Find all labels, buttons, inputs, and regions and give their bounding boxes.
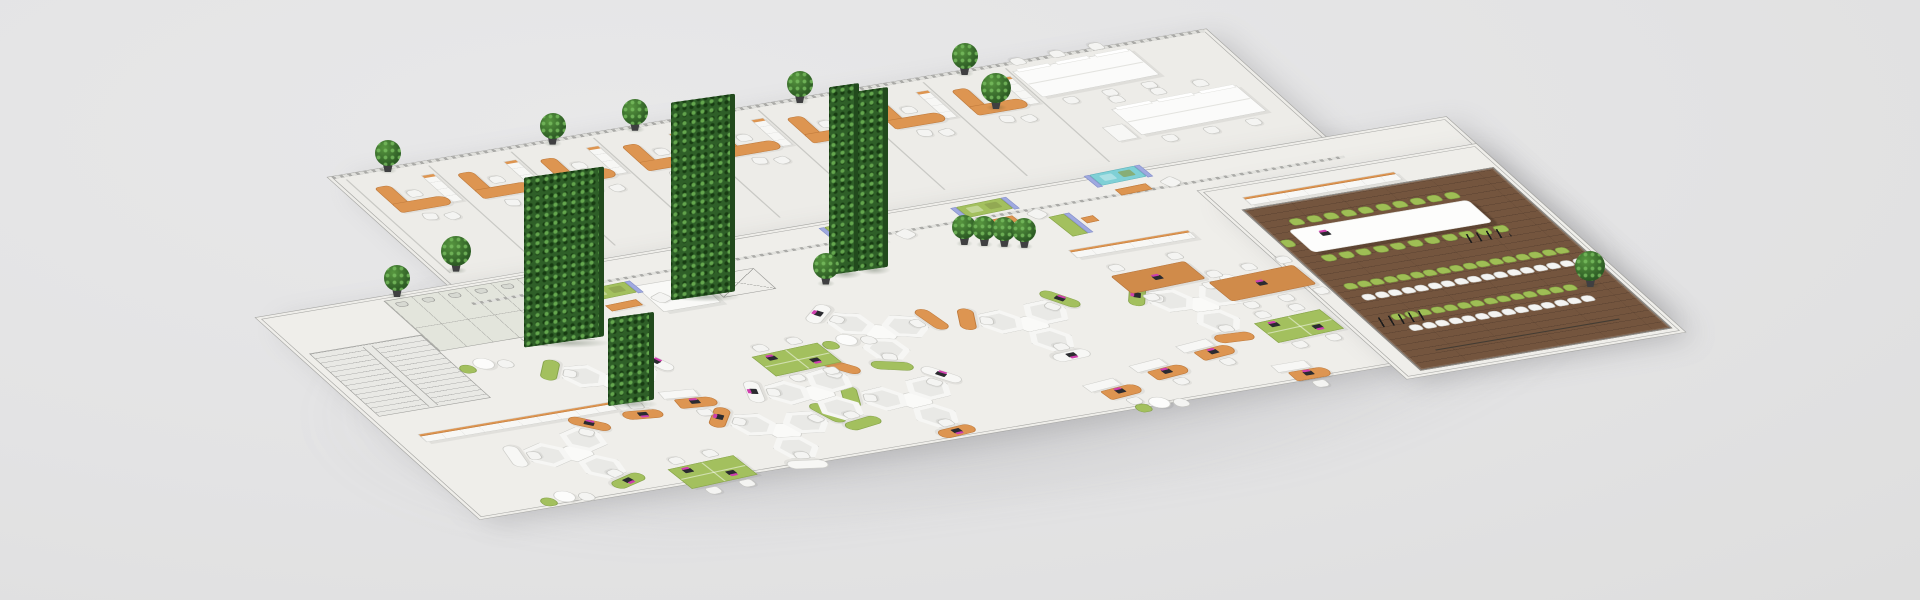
toilet-fixture (500, 283, 516, 289)
laptop-screen (1255, 279, 1264, 282)
bookcase-orange-cap (752, 118, 766, 122)
white-chair (1311, 379, 1332, 388)
laptop-screen (1267, 321, 1276, 324)
white-tub-chair (1170, 397, 1193, 408)
potted-plant (375, 140, 401, 166)
bookcase-orange-cap (669, 132, 683, 136)
laptop-screen (1318, 230, 1327, 233)
toilet-fixture (526, 279, 542, 285)
white-curved-desk (784, 459, 831, 469)
white-chair (737, 478, 758, 487)
toilet-fixture (394, 301, 410, 307)
sofa-cushion (984, 202, 1003, 210)
laptop (637, 412, 650, 416)
laptop-screen (1302, 369, 1311, 372)
laptop (689, 399, 702, 404)
potted-plant (540, 113, 566, 139)
bookcase-orange-cap (999, 77, 1013, 81)
laptop-screen (811, 310, 817, 315)
sofa-cushion (589, 289, 608, 297)
sofa-cushion (852, 222, 871, 230)
potted-plant (622, 99, 648, 125)
laptop-screen (1113, 387, 1122, 390)
stair-rail (363, 346, 439, 407)
laptop-screen (747, 389, 752, 393)
toilet-fixture (447, 292, 463, 298)
bookcase-orange-cap (834, 104, 848, 108)
office-floorplan-scene (0, 0, 1920, 600)
bookcase-orange-cap (587, 146, 601, 150)
sofa-cushion (965, 205, 984, 213)
laptop-screen (1159, 367, 1168, 370)
bookcase-orange-cap (422, 174, 436, 178)
toilet-fixture (473, 288, 489, 294)
potted-plant (787, 71, 813, 97)
laptop-screen (1150, 274, 1159, 277)
bookcase-orange-cap (917, 91, 931, 95)
sofa-cushion (608, 285, 627, 293)
laptop-screen (585, 420, 594, 424)
sofa-cushion (1117, 169, 1136, 177)
bookcase-orange-cap (505, 160, 519, 164)
laptop-screen (1206, 348, 1215, 351)
sofa-cushion (834, 225, 853, 233)
toilet-fixture (421, 297, 437, 303)
laptop-screen (765, 354, 774, 357)
laptop-screen (688, 398, 697, 401)
white-chair (880, 353, 898, 361)
laptop-screen (681, 467, 690, 470)
sofa-cushion (1099, 173, 1118, 181)
white-chair (703, 486, 724, 495)
potted-plant (952, 43, 978, 69)
